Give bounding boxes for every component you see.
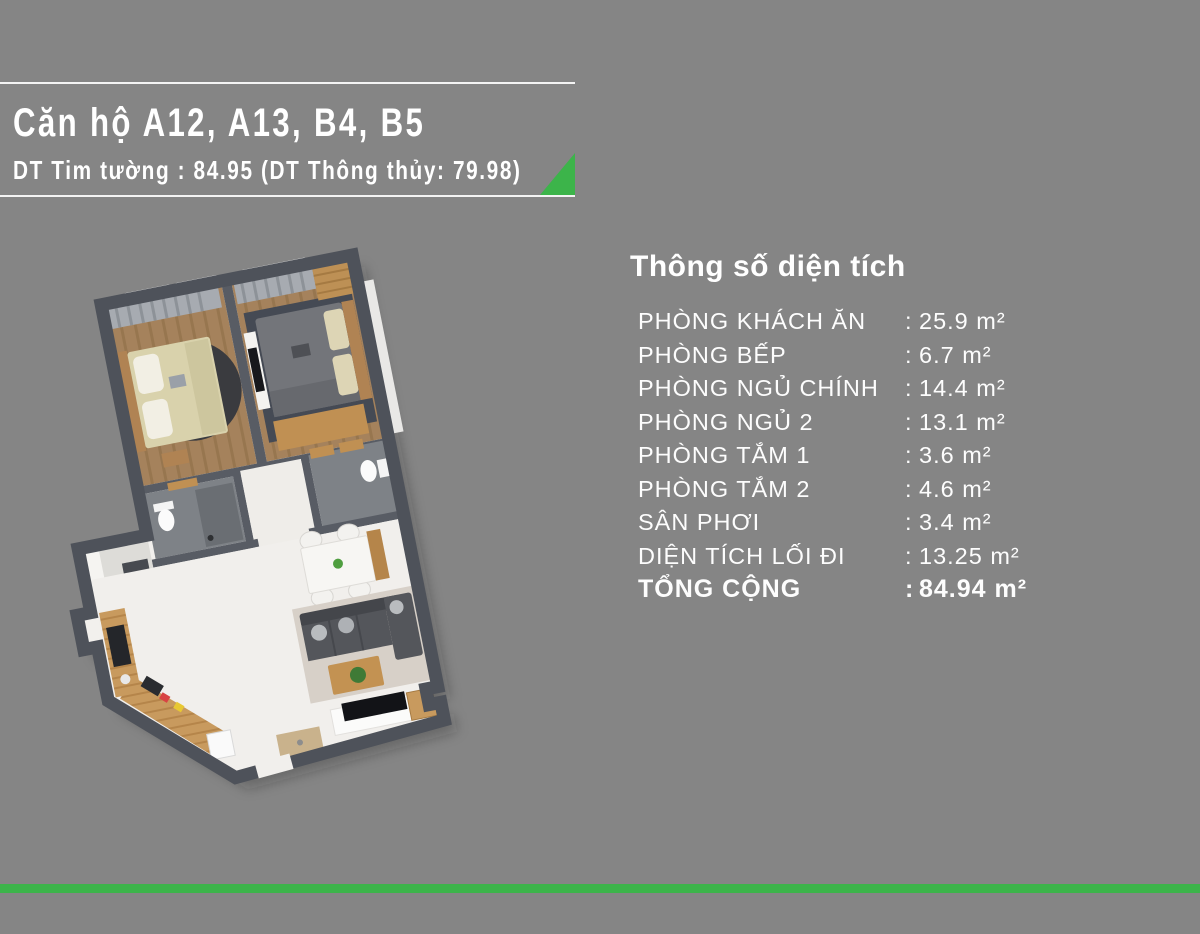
row-separator: : <box>905 473 919 507</box>
row-value: 3.4 m² <box>919 506 992 540</box>
row-separator: : <box>905 540 919 574</box>
table-row-total: TỔNG CỘNG:84.94 m² <box>638 573 1027 607</box>
row-value: 4.6 m² <box>919 473 992 507</box>
row-separator: : <box>905 372 919 406</box>
row-value: 25.9 m² <box>919 305 1006 339</box>
row-value: 13.1 m² <box>919 406 1006 440</box>
page-background: Căn hộ A12, A13, B4, B5 DT Tim tường : 8… <box>0 0 1200 934</box>
row-label: PHÒNG KHÁCH ĂN <box>638 305 905 339</box>
header-rule-bottom <box>0 195 575 197</box>
table-row: PHÒNG KHÁCH ĂN:25.9 m² <box>638 305 1027 339</box>
row-label: PHÒNG NGỦ CHÍNH <box>638 372 905 406</box>
table-row: DIỆN TÍCH LỐI ĐI:13.25 m² <box>638 540 1027 574</box>
row-label: SÂN PHƠI <box>638 506 905 540</box>
table-row: PHÒNG BẾP:6.7 m² <box>638 339 1027 373</box>
row-separator: : <box>905 439 919 473</box>
table-row: PHÒNG TẮM 2:4.6 m² <box>638 473 1027 507</box>
row-label: TỔNG CỘNG <box>638 573 905 607</box>
table-row: PHÒNG NGỦ CHÍNH:14.4 m² <box>638 372 1027 406</box>
row-value: 3.6 m² <box>919 439 992 473</box>
row-label: PHÒNG BẾP <box>638 339 905 373</box>
row-separator: : <box>905 506 919 540</box>
row-label: PHÒNG TẮM 1 <box>638 439 905 473</box>
table-row: PHÒNG TẮM 1:3.6 m² <box>638 439 1027 473</box>
panel-heading: Thông số diện tích <box>630 250 906 284</box>
row-separator: : <box>905 573 919 607</box>
page-title: Căn hộ A12, A13, B4, B5 <box>13 101 425 145</box>
row-value: 6.7 m² <box>919 339 992 373</box>
green-triangle-icon <box>540 153 575 195</box>
row-label: DIỆN TÍCH LỐI ĐI <box>638 540 905 574</box>
row-value: 14.4 m² <box>919 372 1006 406</box>
table-row: SÂN PHƠI:3.4 m² <box>638 506 1027 540</box>
row-label: PHÒNG TẮM 2 <box>638 473 905 507</box>
row-value: 84.94 m² <box>919 573 1027 607</box>
area-table: PHÒNG KHÁCH ĂN:25.9 m² PHÒNG BẾP:6.7 m² … <box>638 305 1027 607</box>
row-label: PHÒNG NGỦ 2 <box>638 406 905 440</box>
row-separator: : <box>905 339 919 373</box>
footer-accent-bar <box>0 884 1200 893</box>
table-row: PHÒNG NGỦ 2:13.1 m² <box>638 406 1027 440</box>
page-subtitle: DT Tim tường : 84.95 (DT Thông thủy: 79.… <box>13 155 522 186</box>
row-value: 13.25 m² <box>919 540 1020 574</box>
row-separator: : <box>905 406 919 440</box>
header-rule-top <box>0 82 575 84</box>
row-separator: : <box>905 305 919 339</box>
